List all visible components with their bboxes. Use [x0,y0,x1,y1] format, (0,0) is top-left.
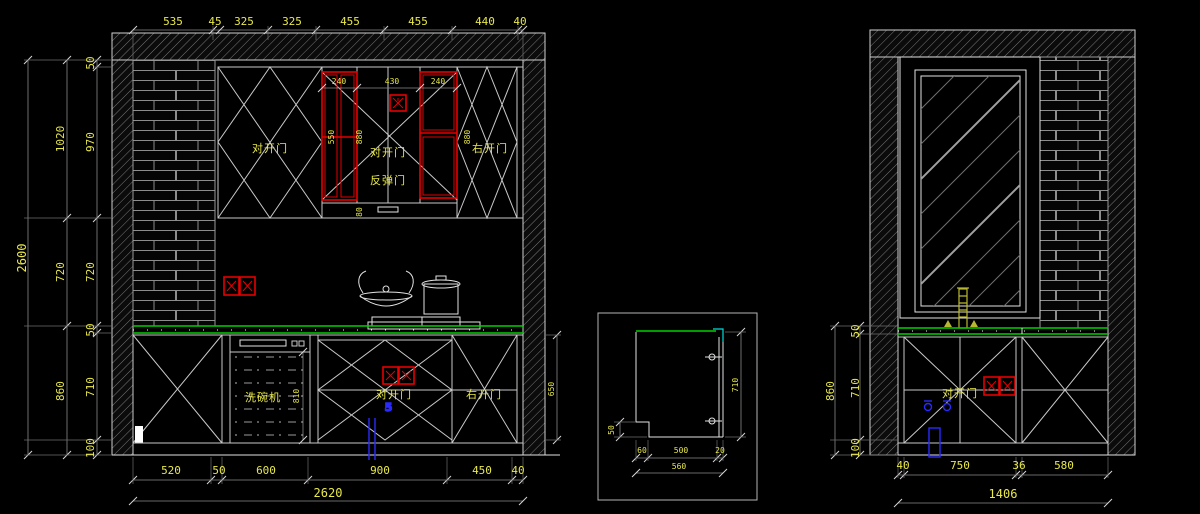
countertop-right [898,328,1108,334]
detail-dim-b1: 500 [674,446,689,455]
dim-top-3: 325 [282,15,302,28]
label-wall-right-door: 右开门 [472,141,508,155]
dim-top-1: 45 [208,15,221,28]
socket-symbol-wall [390,95,406,111]
hood-handle [378,207,398,212]
dim-dishwasher-h: 810 [292,389,301,404]
cad-drawing-canvas: 535 45 325 325 455 455 440 40 240 430 24… [0,0,1200,514]
dim-bot-3: 900 [370,464,390,477]
dim-cab-240b: 240 [431,77,446,86]
dim-small-1: 880 [355,130,364,145]
wall-stub [135,426,143,443]
dim-bot-total: 2620 [314,486,343,500]
dim-v-in-1: 970 [84,132,97,152]
label-base-right-door: 右开门 [466,387,502,401]
dimension-lines-right: 860 50 710 100 40 750 36 580 1406 对开门 [824,322,1112,507]
hood-flip-panel [322,203,457,218]
dim-bot-4: 450 [472,464,492,477]
socket-symbol-right [984,377,1015,395]
dim-v-mid-1: 720 [54,262,67,282]
dim-top-2: 325 [234,15,254,28]
dim-small-3: 80 [355,207,364,217]
detail-dim-total: 560 [672,462,687,471]
wok-icon [359,271,414,306]
rdim-b-3: 580 [1054,459,1074,472]
dim-top-7: 40 [513,15,526,28]
label-base-mid-door: 对开门 [376,387,412,401]
detail-dim-b2: 20 [715,446,725,455]
glass-door-cabinet-right [420,72,457,198]
water-valve-icons [924,401,951,457]
dim-v-in-0: 50 [84,56,97,69]
detail-dim-b0: 60 [637,446,647,455]
dim-bot-2: 600 [256,464,276,477]
label-wall-mid-door2: 反弹门 [370,173,406,187]
rdim-v-1: 710 [849,378,862,398]
dim-bot-0: 520 [161,464,181,477]
rdim-b-total: 1406 [989,487,1018,501]
dim-bot-5: 40 [511,464,524,477]
dim-top-0: 535 [163,15,183,28]
detail-dim-height: 710 [731,378,740,393]
cabinet-section [636,332,723,437]
label-wall-mid-door: 对开门 [370,145,406,159]
left-elevation: 535 45 325 325 455 455 440 40 240 430 24… [15,15,561,505]
base-cabinets [133,335,523,443]
detail-dim-toe: 50 [607,425,616,435]
label-wall-left-door: 对开门 [252,141,288,155]
dim-v-mid-2: 860 [54,381,67,401]
brick-wall [133,60,215,326]
brick-wall-right [1040,57,1108,328]
socket-symbol-backsplash [224,277,255,295]
faucet-icon [944,288,978,328]
cooktop [359,271,480,329]
dim-small-0: 550 [327,130,336,145]
kitchen-elevation-drawing: 535 45 325 325 455 455 440 40 240 430 24… [0,0,1200,514]
rdim-v-0: 50 [849,324,862,337]
section-detail: 710 50 60 500 20 560 [598,313,757,500]
detail-border [598,313,757,500]
label-dishwasher: 洗碗机 [245,390,281,404]
dim-v-in-4: 710 [84,377,97,397]
dim-bot-1: 50 [212,464,225,477]
socket-symbol-base [383,367,414,384]
rdim-v-2: 100 [849,438,862,458]
dim-v-total: 2600 [15,244,29,273]
dim-small-2: 880 [463,130,472,145]
rdim-b-1: 750 [950,459,970,472]
rdim-b-0: 40 [896,459,909,472]
dim-top-4: 455 [340,15,360,28]
dim-v-in-3: 50 [84,323,97,336]
dim-v-in-2: 720 [84,262,97,282]
base-left-cross [133,335,222,443]
dim-door-h: 650 [547,382,556,397]
pot-icon [422,276,460,314]
water-pipe-lines [369,418,375,460]
label-right-base-door: 对开门 [942,386,978,400]
dim-v-in-5: 100 [84,438,97,458]
dim-top-6: 440 [475,15,495,28]
base-cabinets-right [898,337,1108,443]
right-elevation: 860 50 710 100 40 750 36 580 1406 对开门 [700,30,1200,507]
detail-dims: 710 50 60 500 20 560 [607,328,746,477]
rdim-b-2: 36 [1012,459,1025,472]
rdim-v-total: 860 [824,381,837,401]
dim-cab-430: 430 [385,77,400,86]
valve-mark: 5 [385,401,394,414]
dim-top-5: 455 [408,15,428,28]
dim-v-mid-0: 1020 [54,126,67,153]
dim-cab-240a: 240 [332,77,347,86]
